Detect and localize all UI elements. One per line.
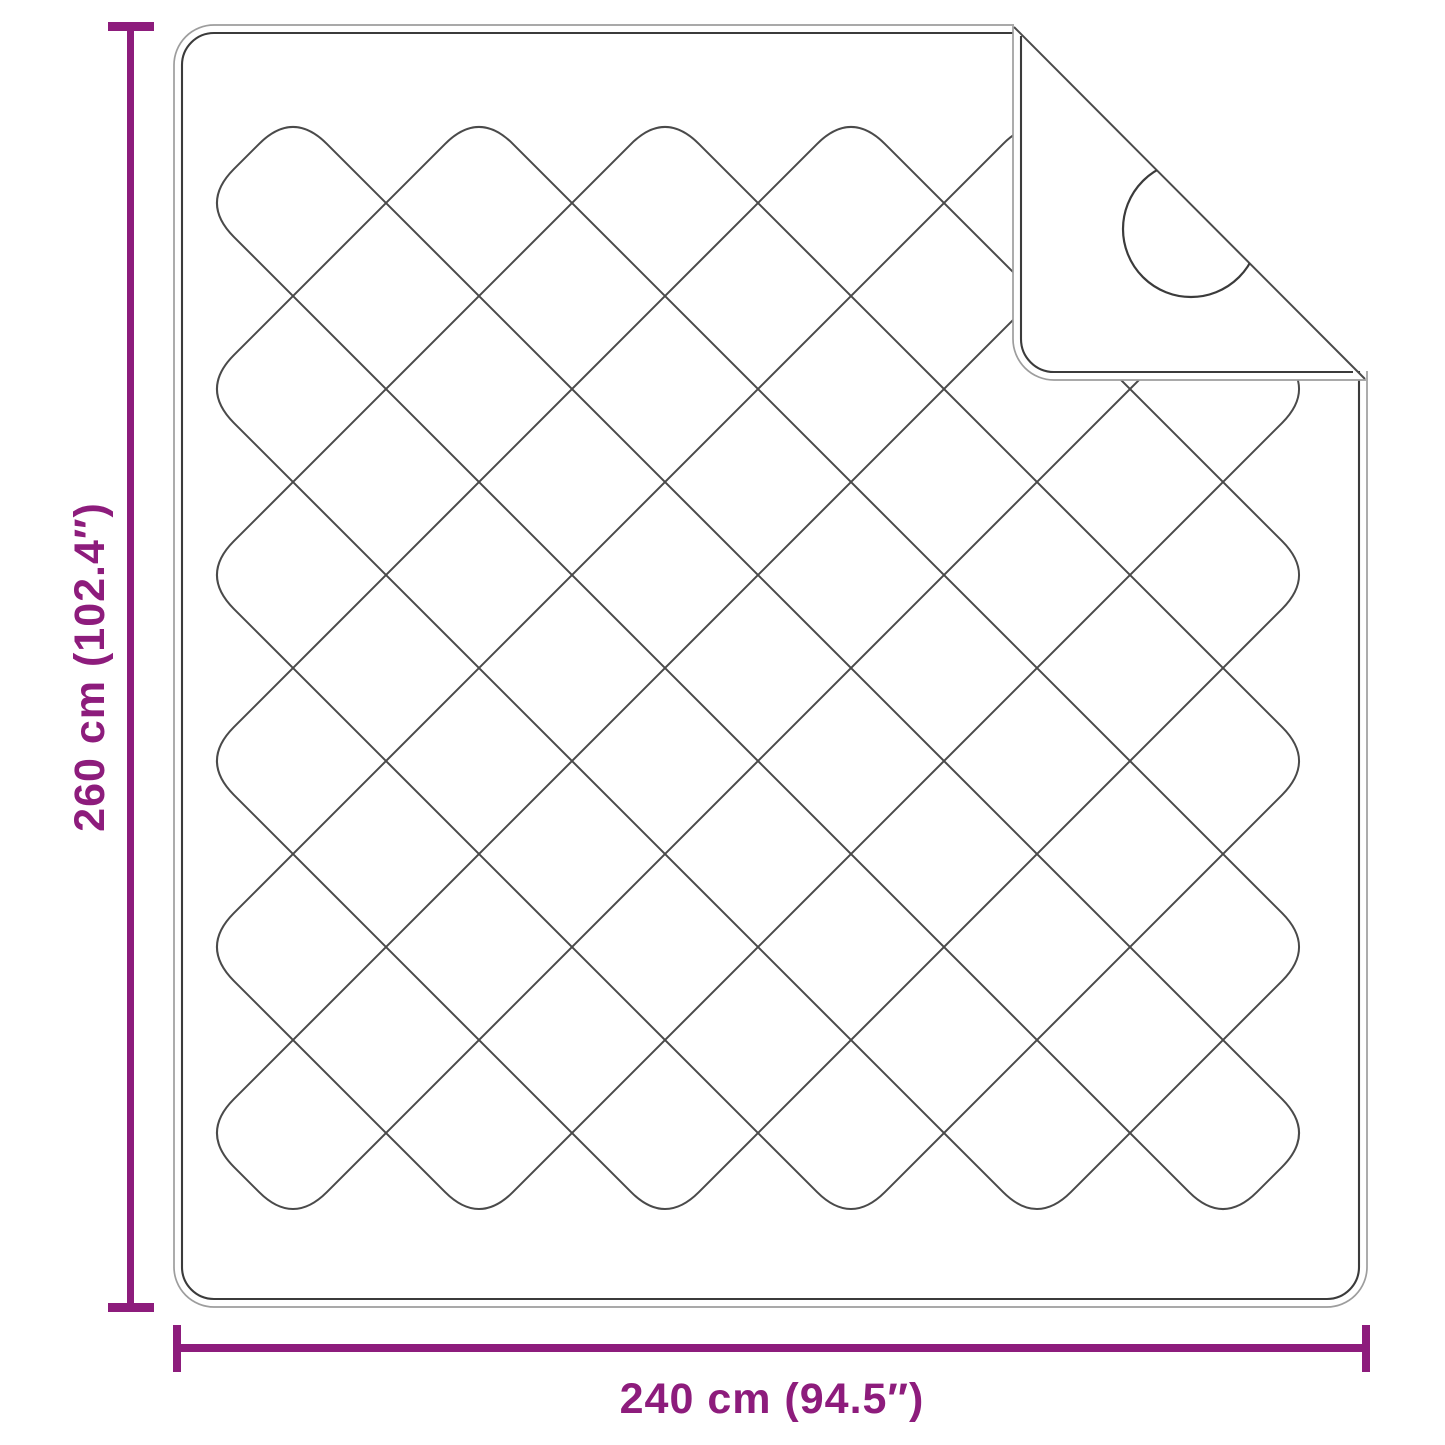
width-dimension-cap-right	[1362, 1325, 1370, 1372]
height-dimension-label: 260 cm (102.4″)	[66, 502, 114, 832]
height-dimension-line	[127, 23, 134, 1312]
width-dimension-line	[177, 1344, 1367, 1352]
blanket-diagram-canvas: 260 cm (102.4″) 240 cm (94.5″)	[0, 0, 1445, 1445]
height-dimension-cap-bottom	[108, 1303, 154, 1312]
width-dimension-cap-left	[173, 1325, 181, 1372]
product-dimension-image: 260 cm (102.4″) 240 cm (94.5″)	[0, 0, 1445, 1445]
height-dimension-cap-top	[108, 22, 154, 31]
width-dimension-label: 240 cm (94.5″)	[620, 1375, 925, 1423]
